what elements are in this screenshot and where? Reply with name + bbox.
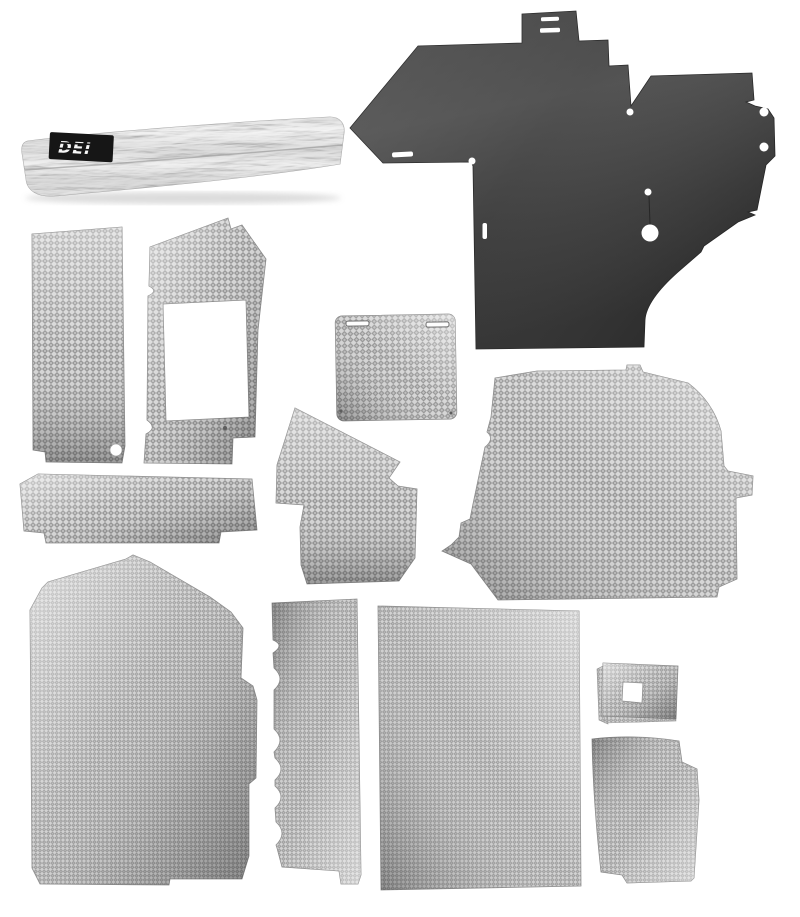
panel-sheen (378, 606, 581, 890)
corner-panel-piece: Angular mesh corner panel (276, 408, 417, 584)
pin-hole (449, 411, 452, 414)
side-panel-left-piece: Tall mesh side panel with corner hole (32, 227, 125, 463)
panel-sheen (272, 599, 361, 884)
mount-slot (346, 321, 369, 326)
panel-sheen (442, 365, 753, 600)
notch-hole (627, 109, 634, 116)
insulation-kit-photo: Rolled reflective foil insulation with D… (0, 0, 800, 917)
rect-panel-piece: Large rectangular mesh panel (378, 606, 581, 890)
product-photo: Rolled reflective foil insulation with D… (0, 0, 800, 917)
panel-sheen (335, 314, 457, 421)
panel-sheen (592, 737, 699, 883)
cutout-frame-panel-piece: Mesh panel with large rectangular cutout (144, 218, 266, 464)
quarter-panel-piece: Large mesh quarter panel with right-side… (442, 365, 753, 600)
small-hole (645, 189, 652, 196)
bolt-hole (760, 143, 769, 152)
edge-slot (483, 223, 488, 239)
panel-sheen (32, 227, 125, 463)
panel-sheen (144, 218, 266, 464)
pin-hole (339, 409, 342, 412)
corner-wrap-panel-piece: Curved mesh corner panel with stepped ed… (592, 737, 699, 883)
dei-logo: DEI (49, 132, 114, 162)
panel-sheen (601, 663, 678, 719)
corner-hole (110, 444, 122, 456)
cover-panel-piece: Small mesh cover panel with two top slot… (335, 314, 457, 421)
pin-hole (223, 426, 227, 430)
scalloped-strip-piece: Narrow mesh strip with scalloped left ed… (272, 599, 361, 884)
corner-hole (469, 158, 476, 165)
foil-roll-piece: Rolled reflective foil insulation with D… (22, 117, 344, 204)
square-grommet-panel-piece: Small square mesh panel with square hole (597, 663, 678, 724)
bolt-hole (760, 108, 769, 117)
lower-strip-piece: Wide mesh strip with notched corners (20, 474, 257, 543)
panel-sheen (20, 474, 257, 543)
tab-slot (541, 17, 559, 22)
panel-sheen (30, 555, 257, 885)
barrier-panel-piece: Large dark firewall barrier panel with t… (350, 11, 775, 349)
tab-slot (540, 28, 560, 33)
floor-panel-piece: Large mesh floor panel with top peak (30, 555, 257, 885)
barrier-panel-sheen (350, 11, 775, 349)
mount-slot (426, 322, 449, 327)
large-hole (642, 225, 659, 242)
